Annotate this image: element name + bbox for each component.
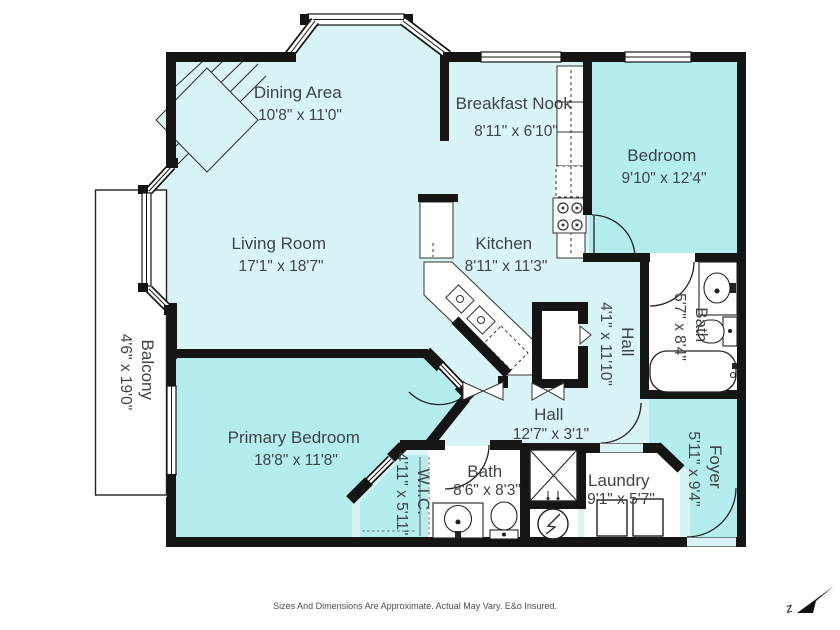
disclaimer-text: Sizes And Dimensions Are Approximate. Ac… (273, 601, 557, 611)
stove-icon (553, 198, 586, 233)
water-heater-icon (538, 509, 568, 539)
toilet-icon (490, 502, 518, 539)
pantry-fill (540, 310, 580, 380)
cabinet-icon (420, 202, 453, 258)
label-laundry: Laundry 9'1" x 5'7" (587, 471, 655, 508)
window (142, 193, 151, 286)
bathtub-icon (650, 351, 737, 392)
door-opening (650, 253, 695, 263)
threshold (600, 443, 643, 453)
entry-threshold (687, 537, 736, 547)
compass-north-icon: z (783, 586, 834, 616)
window (625, 52, 691, 62)
window (481, 52, 561, 62)
bath-lower-fixtures (433, 502, 518, 539)
compass-label: z (783, 600, 794, 616)
window (167, 352, 176, 500)
hall-closet (530, 450, 577, 501)
floorplan-svg: Dining Area 10'8" x 11'0" Breakfast Nook… (0, 0, 840, 630)
floorplan-page: Dining Area 10'8" x 11'0" Breakfast Nook… (0, 0, 840, 630)
